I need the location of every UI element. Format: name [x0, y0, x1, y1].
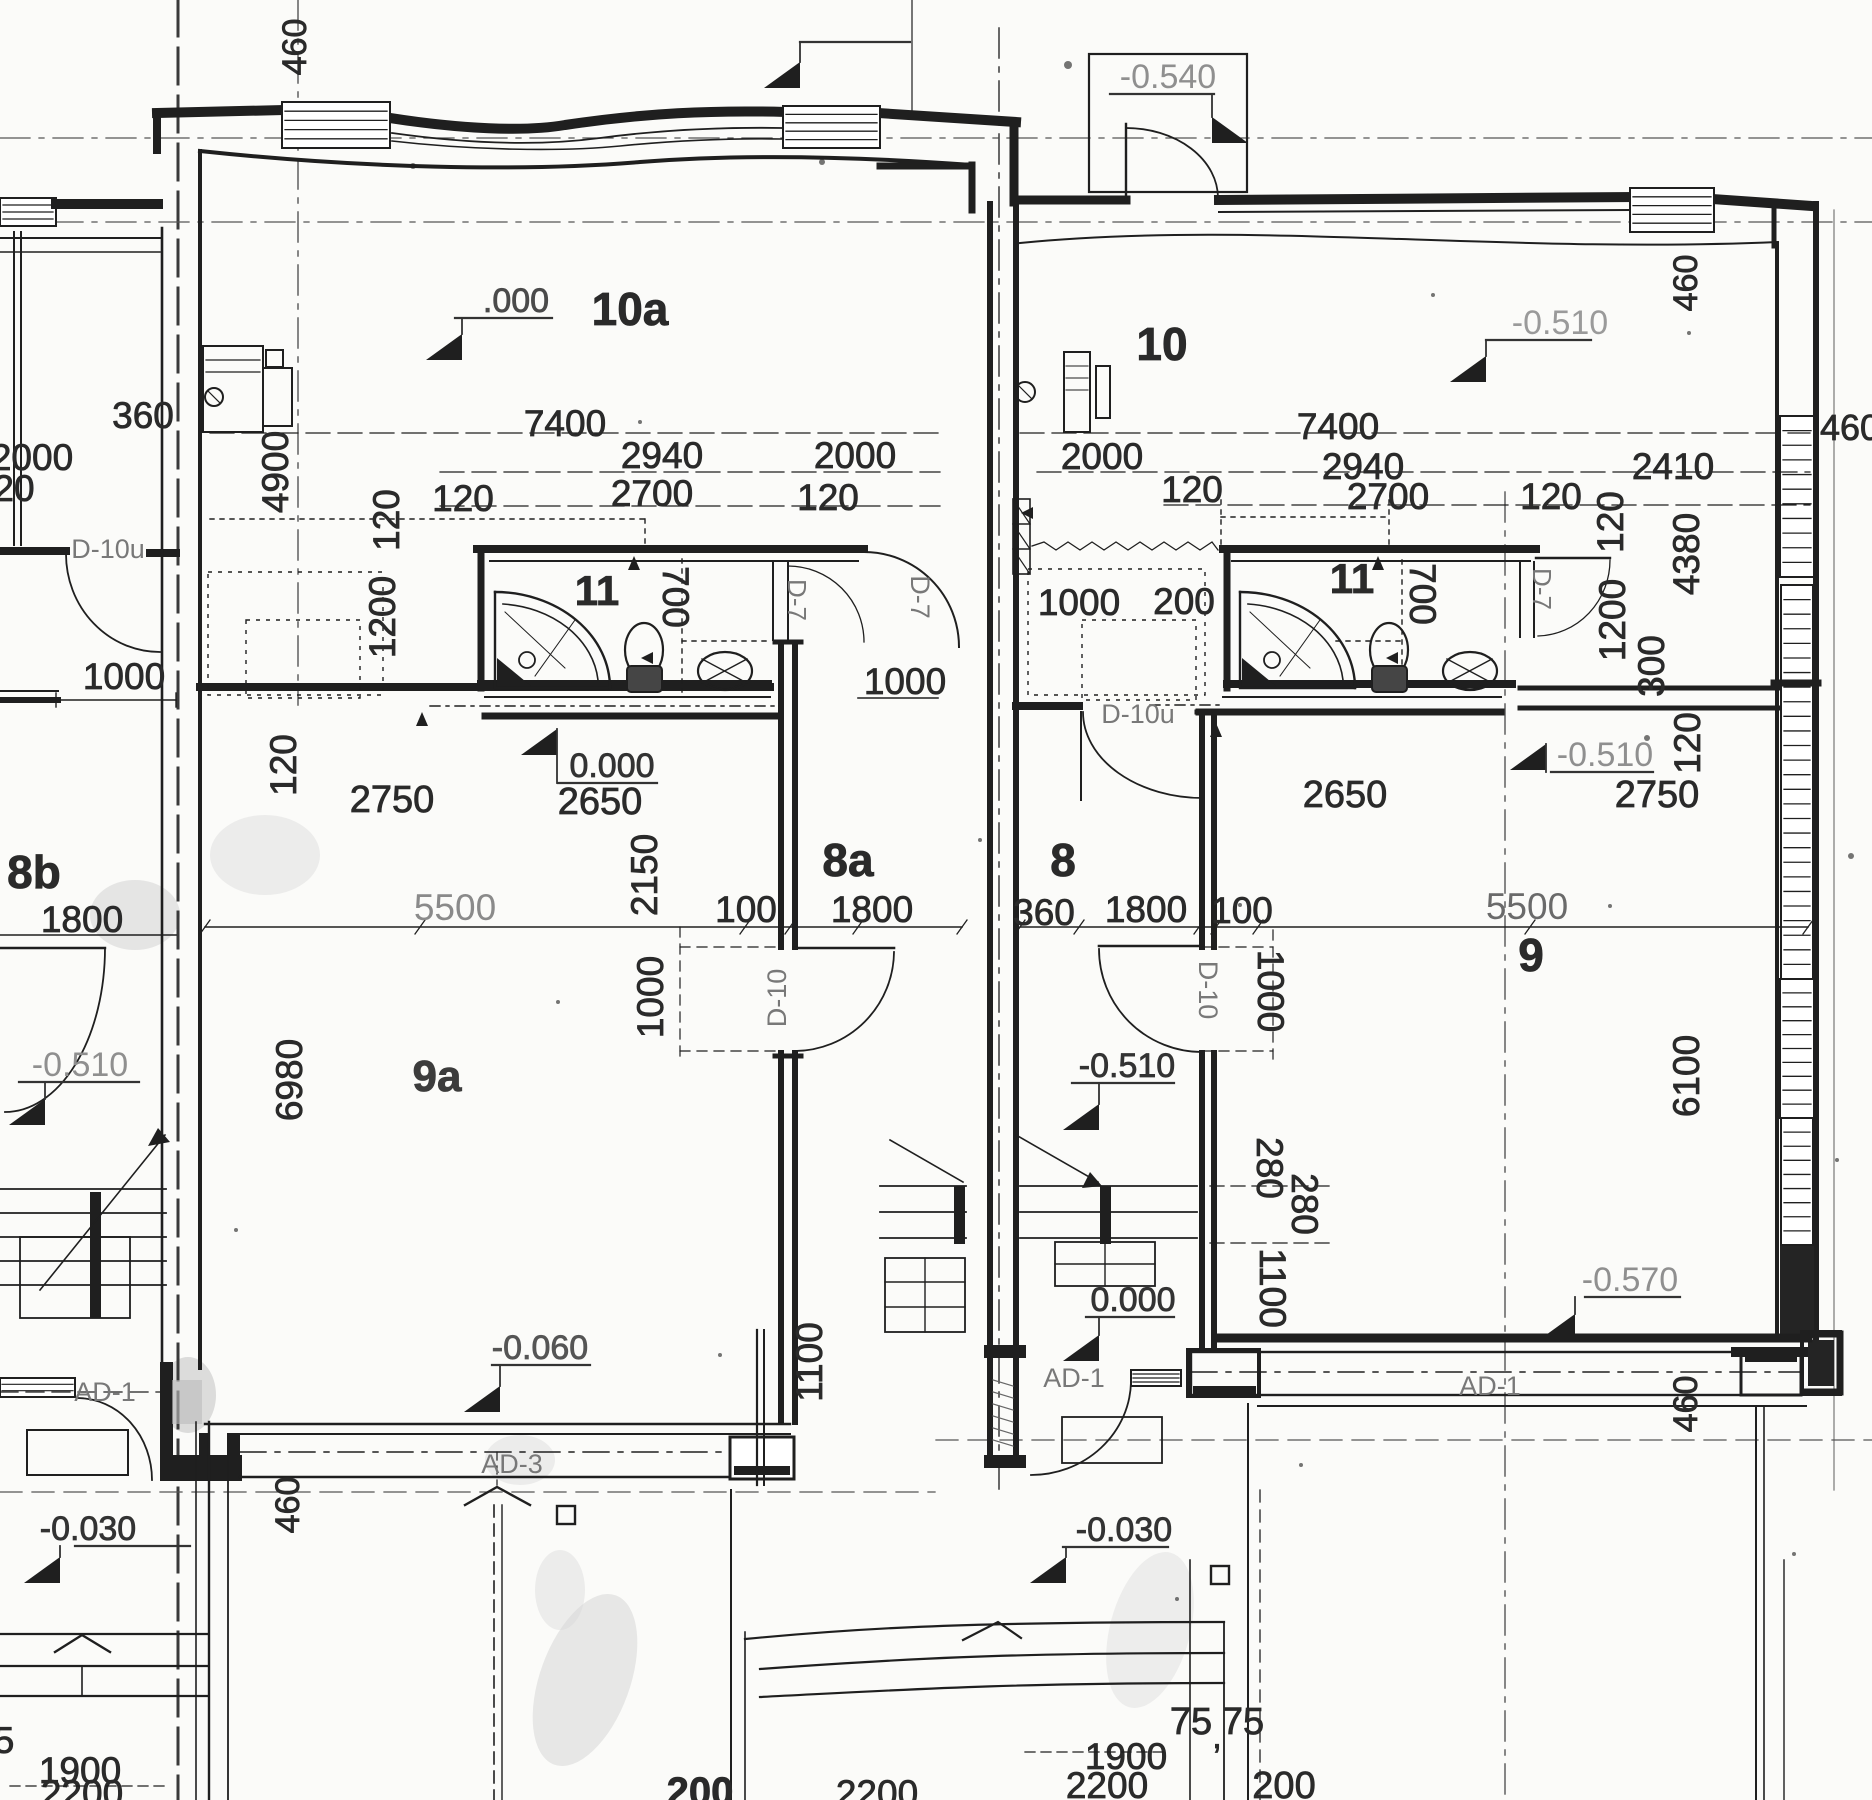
svg-text:200: 200	[667, 1770, 734, 1800]
svg-text:2750: 2750	[350, 779, 435, 821]
svg-text:8a: 8a	[822, 834, 874, 886]
svg-text:1800: 1800	[831, 889, 913, 930]
svg-text:120: 120	[797, 477, 859, 518]
svg-text:-0.570: -0.570	[1582, 1261, 1678, 1299]
svg-text:280: 280	[1249, 1137, 1290, 1199]
svg-text:2940: 2940	[621, 435, 703, 476]
svg-text:2700: 2700	[1347, 476, 1429, 517]
svg-text:7400: 7400	[524, 403, 606, 444]
svg-text:2200: 2200	[1066, 1765, 1148, 1800]
svg-text:0.000: 0.000	[569, 747, 654, 785]
svg-text:8b: 8b	[7, 846, 61, 898]
svg-text:2750: 2750	[1615, 774, 1700, 816]
svg-text:120: 120	[1667, 712, 1708, 774]
svg-text:120: 120	[366, 489, 407, 551]
svg-text:5500: 5500	[414, 887, 496, 928]
svg-text:D-10: D-10	[1193, 961, 1223, 1020]
svg-text:120: 120	[432, 478, 494, 519]
svg-text:200: 200	[1252, 1765, 1315, 1800]
svg-text:75: 75	[1222, 1701, 1264, 1743]
svg-text:1800: 1800	[41, 899, 123, 940]
svg-text:460: 460	[269, 1477, 307, 1534]
svg-text:2000: 2000	[1061, 436, 1143, 477]
svg-text:-0.510: -0.510	[1557, 736, 1653, 774]
svg-text:1200: 1200	[362, 576, 403, 658]
svg-text:4900: 4900	[255, 431, 296, 513]
svg-text:-0.030: -0.030	[1076, 1511, 1172, 1549]
svg-text:120: 120	[1590, 491, 1631, 553]
svg-text:D-7: D-7	[1527, 568, 1557, 610]
svg-text:AD-1: AD-1	[74, 1377, 136, 1407]
svg-text:-0.510: -0.510	[1079, 1047, 1175, 1085]
svg-text:2650: 2650	[1303, 774, 1388, 816]
svg-text:4380: 4380	[1666, 513, 1707, 595]
svg-text:2650: 2650	[558, 781, 643, 823]
svg-text:700: 700	[655, 566, 696, 628]
svg-text:11: 11	[1330, 555, 1374, 602]
svg-text:1000: 1000	[630, 956, 671, 1038]
svg-text:1800: 1800	[1105, 889, 1187, 930]
svg-text:-0.030: -0.030	[40, 1510, 136, 1548]
svg-text:-0.540: -0.540	[1120, 58, 1216, 96]
svg-text:200: 200	[1153, 581, 1215, 622]
svg-text:5500: 5500	[1486, 886, 1568, 927]
svg-text:100: 100	[1211, 890, 1273, 931]
svg-text:460: 460	[276, 19, 314, 76]
svg-text:6100: 6100	[1666, 1035, 1707, 1117]
svg-text:1100: 1100	[789, 1322, 830, 1402]
svg-text:460: 460	[1667, 1376, 1705, 1433]
svg-text:D-7: D-7	[782, 579, 812, 621]
svg-text:2000: 2000	[814, 435, 896, 476]
svg-text:-0.060: -0.060	[492, 1329, 588, 1367]
svg-text:460: 460	[1820, 407, 1872, 448]
svg-text:2700: 2700	[611, 473, 693, 514]
svg-text:360: 360	[1013, 892, 1075, 933]
svg-text:10: 10	[1136, 318, 1187, 370]
svg-text:1000: 1000	[83, 656, 165, 697]
svg-text:2150: 2150	[624, 834, 665, 916]
svg-text:120: 120	[1520, 476, 1582, 517]
svg-text:360: 360	[112, 395, 174, 436]
svg-text:D-10u: D-10u	[1101, 699, 1175, 729]
svg-text:120: 120	[1161, 469, 1223, 510]
svg-text:10a: 10a	[592, 283, 669, 335]
svg-text:1000: 1000	[1038, 582, 1120, 623]
svg-text:460: 460	[1667, 255, 1705, 312]
svg-text:75: 75	[1170, 1701, 1212, 1743]
svg-text:D-7: D-7	[905, 575, 935, 619]
svg-text:120: 120	[263, 734, 304, 796]
svg-text:1100: 1100	[1252, 1248, 1293, 1328]
svg-text:,: ,	[1212, 1718, 1221, 1756]
svg-text:2410: 2410	[1632, 446, 1714, 487]
svg-text:-0.510: -0.510	[32, 1046, 128, 1084]
svg-text:8: 8	[1050, 834, 1076, 886]
svg-text:D-10u: D-10u	[71, 534, 145, 564]
svg-text:5: 5	[0, 1720, 14, 1761]
svg-text:2200: 2200	[836, 1773, 918, 1800]
svg-text:AD-3: AD-3	[481, 1449, 543, 1479]
svg-text:D-10: D-10	[762, 969, 792, 1028]
svg-text:7400: 7400	[1297, 406, 1379, 447]
svg-text:0.000: 0.000	[1090, 1281, 1175, 1319]
svg-text:.000: .000	[483, 282, 549, 320]
svg-text:100: 100	[715, 889, 777, 930]
svg-text:1000: 1000	[1250, 950, 1291, 1032]
svg-text:20: 20	[0, 468, 35, 509]
svg-text:700: 700	[1402, 563, 1443, 625]
svg-text:1200: 1200	[1592, 579, 1633, 661]
svg-text:280: 280	[1284, 1173, 1325, 1235]
svg-text:AD-1: AD-1	[1043, 1363, 1105, 1393]
svg-text:-0.510: -0.510	[1512, 304, 1608, 342]
svg-text:9: 9	[1518, 929, 1544, 981]
svg-text:9a: 9a	[413, 1052, 462, 1101]
svg-text:1000: 1000	[864, 661, 946, 702]
svg-text:AD-1: AD-1	[1459, 1371, 1521, 1401]
svg-text:6980: 6980	[269, 1039, 310, 1121]
svg-text:300: 300	[1631, 635, 1672, 697]
svg-text:11: 11	[575, 567, 619, 614]
